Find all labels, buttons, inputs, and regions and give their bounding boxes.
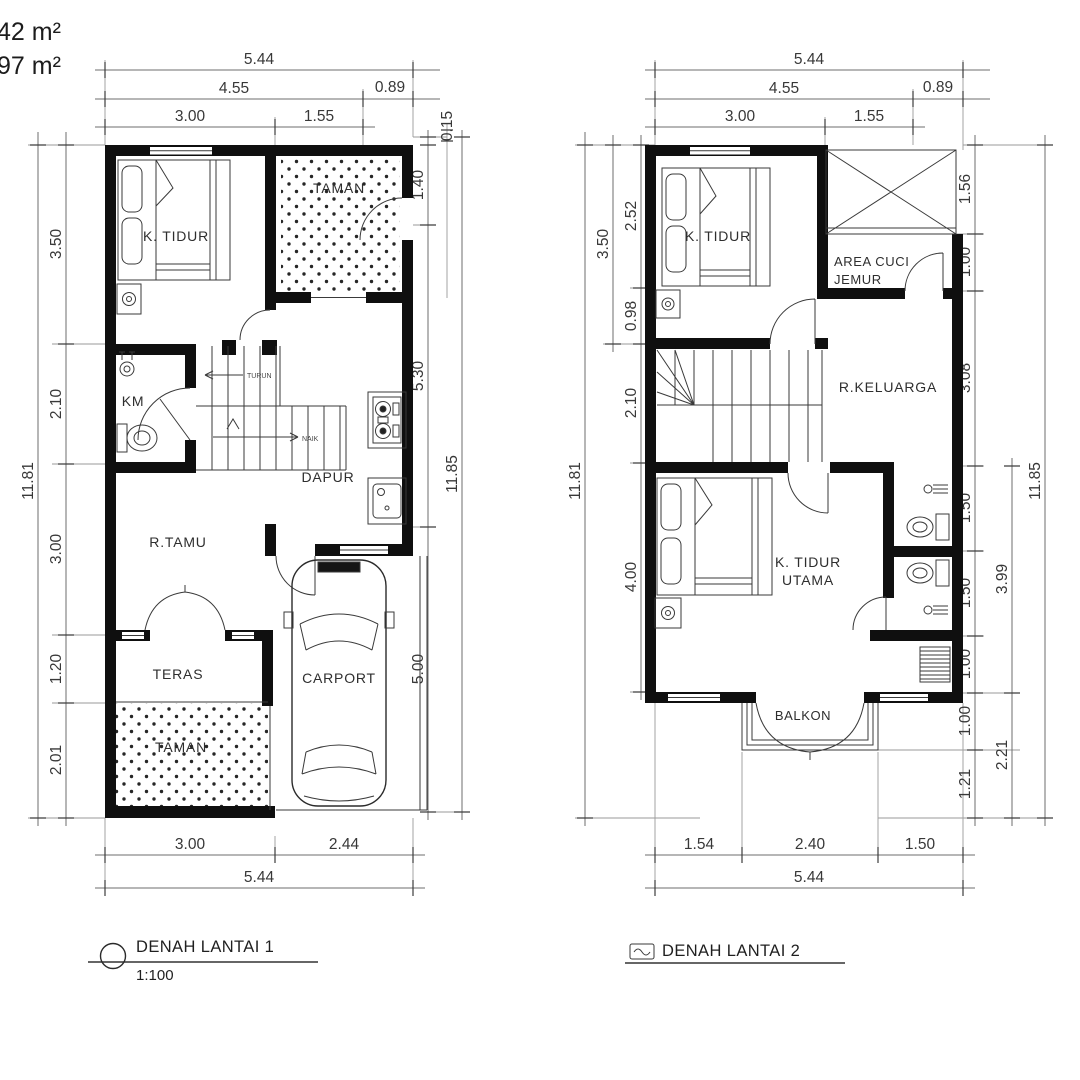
plan2-floorplan: K. TIDUR AREA CUCI JEMUR R.KELUARGA K. T… [645,145,963,760]
plan2-room-master-2: UTAMA [782,572,834,588]
plan1-dim-left-5: 2.01 [48,745,65,775]
plan1-dim-top-c: 3.00 [175,108,206,125]
plan1-dim-right-3: 5.00 [410,654,427,685]
plan1-garden-top-fill [281,156,400,292]
plan1-room-garden-top: TAMAN [313,180,365,196]
plan2-dim-left-3: 2.10 [623,388,640,419]
plan1-room-living: R.TAMU [149,534,206,550]
plan1-dim-left-2: 2.10 [48,389,65,420]
plan1-dim-right-total: 11.85 [444,455,461,493]
plan1-room-garden-bottom: TAMAN [155,739,207,755]
building-area-label: 97 m² [0,52,61,80]
plan1-dim-top-e: 0.15 [439,111,456,141]
plan1-dim-bottom-b: 2.44 [329,836,360,853]
plan1-dim-bottom-total: 5.44 [244,869,275,886]
plan1-room-kitchen: DAPUR [301,469,354,485]
plan1-stairs [196,346,346,470]
plan2-dim-left-a: 3.50 [595,229,612,260]
plan2-room-family: R.KELUARGA [839,379,937,395]
plan2-dimension-labels: 5.44 4.55 0.89 3.00 1.55 11.81 3.50 2.52… [567,51,1044,886]
plan2-dim-top-a: 4.55 [769,80,799,97]
plan1-dim-left-total: 11.81 [20,462,37,500]
plan2-room-bedroom: K. TIDUR [685,228,751,244]
plan2-dim-right-total: 11.85 [1027,462,1044,500]
plan2-dim-right-7: 1.00 [957,706,974,737]
plan1-room-bathroom: KM [122,393,145,409]
plan2-dim-bottom-c: 1.50 [905,836,936,853]
plan1-dim-left-4: 1.20 [48,654,65,685]
plan2-room-master-1: K. TIDUR [775,554,841,570]
pl1-stair-up-label: NAIK [302,436,319,443]
plan1-room-carport: CARPORT [302,670,376,686]
plan2-room-laundry-1: AREA CUCI [834,254,909,269]
plan2-title: DENAH LANTAI 2 [662,942,800,960]
plan1-floorplan: TURUN NAIK [105,145,427,818]
plan2-dim-right-1: 1.56 [957,174,974,204]
plan2-doors [756,253,943,760]
plan1-stove [368,392,406,448]
plan1-dim-top-total: 5.44 [244,51,275,68]
plan2-stairs [657,350,822,462]
plan1-room-bedroom: K. TIDUR [143,228,209,244]
plan2-dim-top-b: 0.89 [923,79,953,96]
plan1-titleblock: DENAH LANTAI 1 1:100 [88,938,318,984]
plan2-dim-left-2: 0.98 [623,301,640,331]
plan1-room-terrace: TERAS [153,666,204,682]
plan1-dim-bottom-a: 3.00 [175,836,206,853]
plan1-title: DENAH LANTAI 1 [136,938,274,956]
floorplan-sheet: 42 m² 97 m² 5.44 4.55 0.89 3.00 1.55 0.1… [0,0,1080,1080]
plan2-bathroom-fixtures [907,485,950,682]
plan2-dim-right-8: 1.21 [957,769,974,799]
plan2-dim-left-1: 2.52 [623,201,640,231]
plan2-room-balcony: BALKON [775,708,831,723]
plan2-dim-left-4: 4.00 [623,562,640,593]
floorplan-drawing: 42 m² 97 m² 5.44 4.55 0.89 3.00 1.55 0.1… [0,0,1080,1080]
plan2-dim-bottom-b: 2.40 [795,836,826,853]
plan2-dim-right-a: 3.99 [994,564,1011,594]
plan2-titleblock: DENAH LANTAI 2 [625,942,845,963]
plan2-dim-right-b: 2.21 [994,740,1011,770]
plan2-dim-bottom-a: 1.54 [684,836,715,853]
plan1-scale: 1:100 [136,967,174,984]
plan2-dim-left-total: 11.81 [567,462,584,500]
site-area-label: 42 m² [0,18,61,46]
plan2-dim-top-total: 5.44 [794,51,825,68]
plan1-dim-top-a: 4.55 [219,80,249,97]
plan1-sink [368,478,406,524]
plan2-dim-top-c: 3.00 [725,108,756,125]
plan2-void-box [826,150,956,234]
plan1-dim-left-3: 3.00 [48,534,65,565]
plan2-dim-top-d: 1.55 [854,108,884,125]
pl1-stair-down-label: TURUN [247,373,272,380]
plan2-bed-master [655,478,772,628]
plan1-dim-top-d: 1.55 [304,108,334,125]
plan1-dim-top-b: 0.89 [375,79,405,96]
plan1-dim-left-1: 3.50 [48,229,65,260]
plan2-room-laundry-2: JEMUR [834,272,882,287]
plan2-dim-bottom-total: 5.44 [794,869,825,886]
